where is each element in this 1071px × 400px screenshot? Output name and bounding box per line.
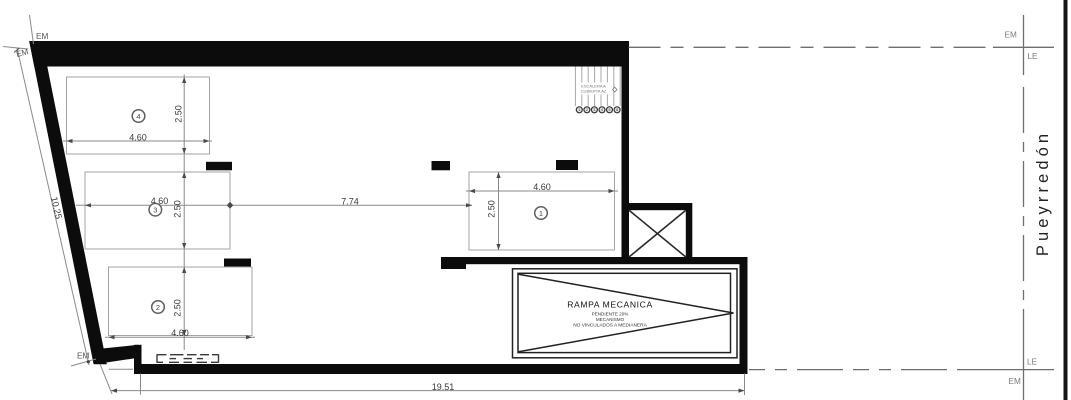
svg-text:19.51: 19.51: [432, 382, 455, 392]
svg-text:2.50: 2.50: [173, 200, 183, 218]
svg-text:Pueyrredón: Pueyrredón: [1034, 130, 1052, 256]
svg-text:5: 5: [609, 108, 611, 112]
svg-text:2.50: 2.50: [487, 200, 497, 218]
svg-text:CUBIERTA AZ: CUBIERTA AZ: [581, 89, 607, 94]
svg-text:7.74: 7.74: [341, 196, 359, 206]
svg-text:4.60: 4.60: [533, 182, 551, 192]
svg-text:PENDIENTE 20%: PENDIENTE 20%: [592, 312, 629, 317]
svg-text:6: 6: [616, 108, 618, 112]
svg-text:LE: LE: [1028, 52, 1039, 61]
svg-text:MECANISMO: MECANISMO: [596, 317, 625, 322]
svg-text:4: 4: [601, 108, 603, 112]
svg-text:3: 3: [593, 108, 595, 112]
svg-text:EM: EM: [36, 32, 48, 41]
svg-text:1: 1: [539, 209, 543, 218]
svg-text:2: 2: [156, 303, 160, 312]
svg-text:2.50: 2.50: [173, 299, 183, 317]
svg-text:4.60: 4.60: [129, 133, 147, 143]
svg-text:4.60: 4.60: [171, 328, 189, 338]
svg-text:4: 4: [136, 112, 140, 121]
svg-text:1: 1: [578, 108, 580, 112]
svg-text:2: 2: [586, 108, 588, 112]
svg-text:NO VINCULADOS A MEDIANERA: NO VINCULADOS A MEDIANERA: [573, 323, 647, 329]
svg-text:3: 3: [153, 206, 157, 215]
svg-text:EM: EM: [77, 352, 89, 361]
svg-text:RAMPA MECANICA: RAMPA MECANICA: [567, 300, 653, 310]
svg-text:EM: EM: [1005, 31, 1017, 40]
svg-text:EM: EM: [1009, 377, 1021, 386]
svg-text:LE: LE: [1027, 357, 1038, 366]
svg-text:2.50: 2.50: [174, 105, 184, 123]
